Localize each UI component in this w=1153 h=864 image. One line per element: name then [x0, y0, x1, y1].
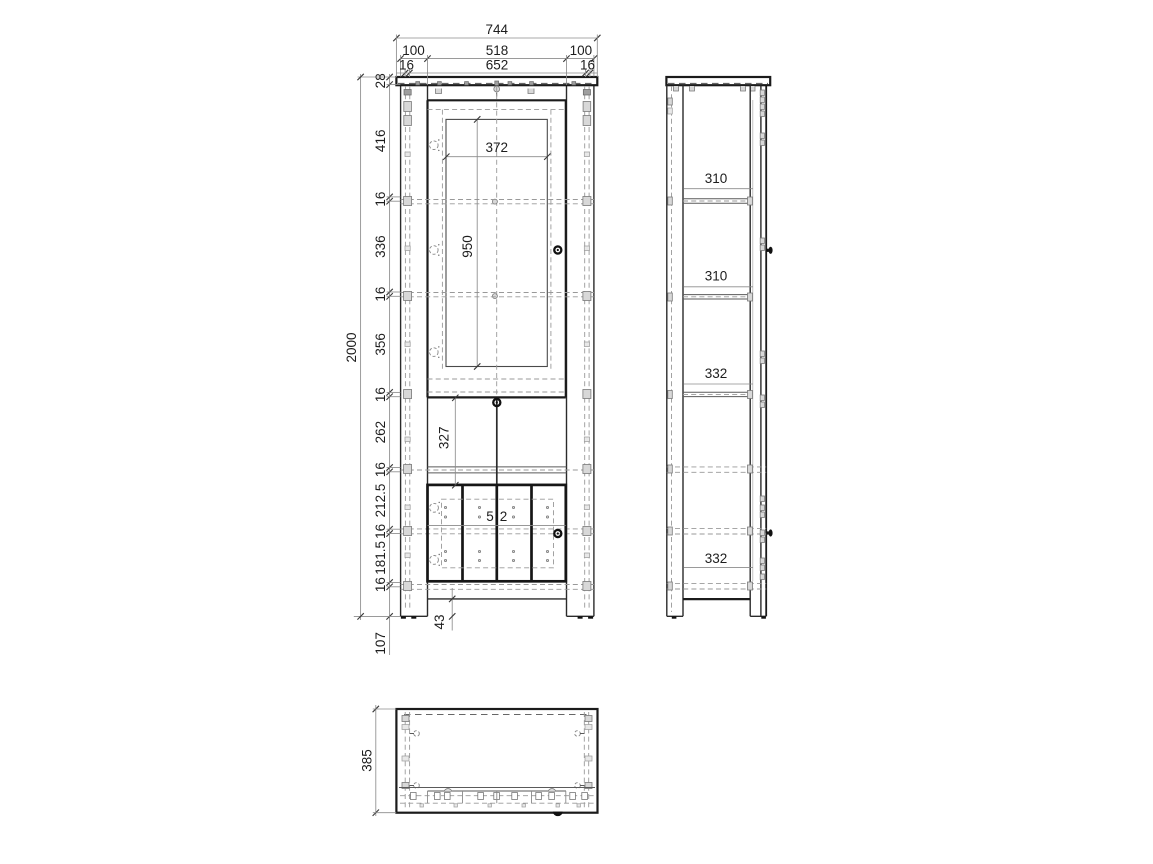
svg-text:28: 28 [373, 73, 388, 88]
svg-text:212.5: 212.5 [373, 484, 388, 518]
svg-text:262: 262 [373, 421, 388, 444]
svg-text:332: 332 [705, 551, 728, 566]
svg-text:950: 950 [460, 235, 475, 258]
svg-text:416: 416 [373, 130, 388, 153]
svg-text:356: 356 [373, 333, 388, 356]
svg-text:336: 336 [373, 235, 388, 258]
svg-text:744: 744 [486, 22, 509, 37]
svg-text:16: 16 [373, 192, 388, 207]
svg-text:16: 16 [373, 577, 388, 592]
svg-text:310: 310 [705, 269, 728, 284]
svg-text:652: 652 [486, 58, 509, 73]
svg-text:16: 16 [580, 58, 595, 73]
svg-text:310: 310 [705, 171, 728, 186]
svg-text:385: 385 [360, 749, 375, 772]
svg-text:372: 372 [486, 140, 509, 155]
svg-text:332: 332 [705, 366, 728, 381]
svg-text:518: 518 [486, 43, 509, 58]
svg-text:107: 107 [373, 632, 388, 655]
svg-text:100: 100 [402, 43, 425, 58]
svg-text:5: 5 [486, 509, 494, 524]
svg-text:16: 16 [399, 58, 414, 73]
svg-text:2: 2 [500, 509, 508, 524]
svg-text:16: 16 [373, 287, 388, 302]
svg-text:100: 100 [570, 43, 593, 58]
svg-text:2000: 2000 [344, 332, 359, 362]
svg-text:327: 327 [437, 427, 452, 450]
svg-text:16: 16 [373, 524, 388, 539]
svg-text:181.5: 181.5 [373, 541, 388, 575]
svg-text:43: 43 [432, 614, 447, 629]
svg-text:16: 16 [373, 462, 388, 477]
svg-text:16: 16 [373, 387, 388, 402]
